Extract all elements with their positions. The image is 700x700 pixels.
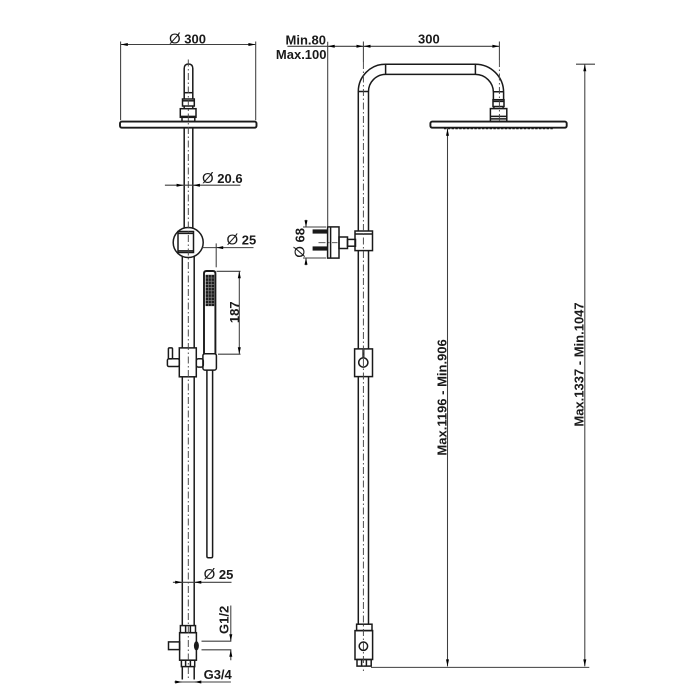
svg-text:300: 300 <box>418 32 440 47</box>
svg-text:Ø 300: Ø 300 <box>169 30 206 47</box>
svg-text:Max.1196 - Min.906: Max.1196 - Min.906 <box>434 339 449 455</box>
svg-text:G3/4: G3/4 <box>204 667 233 682</box>
svg-text:G1/2: G1/2 <box>216 606 231 634</box>
svg-text:Ø 25: Ø 25 <box>204 566 234 583</box>
svg-text:Ø 25: Ø 25 <box>227 232 257 249</box>
svg-text:Ø 20.6: Ø 20.6 <box>202 170 243 187</box>
svg-text:Max.100: Max.100 <box>276 47 327 62</box>
svg-text:187: 187 <box>227 301 242 323</box>
svg-text:Min.80: Min.80 <box>286 32 326 47</box>
svg-text:Ø 68: Ø 68 <box>292 228 309 258</box>
svg-text:Max.1337 - Min.1047: Max.1337 - Min.1047 <box>572 302 587 426</box>
